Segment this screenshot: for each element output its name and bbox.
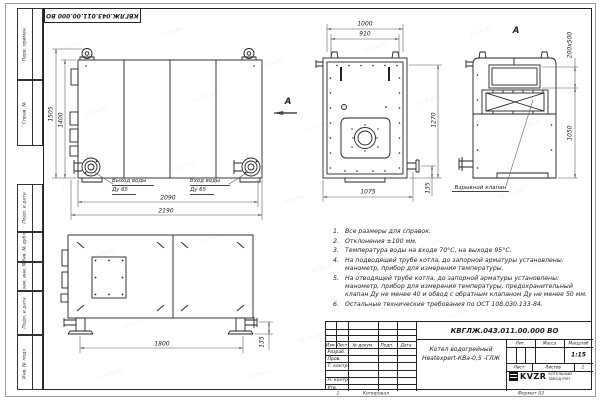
tb-product-name-line2: Heatexpert-КВа-0,5 -ГЛЖ (416, 355, 506, 364)
tb-line (516, 347, 517, 363)
tb-mass-label: Масса (543, 341, 556, 346)
note-number: 2. (333, 238, 345, 246)
tb-line (326, 329, 416, 330)
dim-front-height: 1270 (431, 112, 438, 127)
tb-row-utv: Утв. (328, 386, 338, 391)
tb-line (506, 347, 593, 348)
explosion-valve-callout: Взрывной клапан (452, 185, 509, 192)
view-a (459, 52, 556, 178)
dim-side-width-outer: 2190 (158, 208, 173, 215)
tb-line (378, 322, 379, 391)
tb-col-docnum: № докум. (353, 342, 374, 347)
note-item: 3.Температура воды на входе 70°С, на вых… (333, 247, 588, 255)
technical-notes: 1.Все размеры для справок. 2.Отклонения … (333, 228, 588, 311)
note-item: 5.На отводящей трубе котла, до запорной … (333, 275, 588, 300)
note-item: 4.На подводящей трубе котла, до запорной… (333, 257, 588, 273)
tb-row-nkontr: Н. контр. (328, 378, 350, 383)
note-text: Остальные технические требования по ОСТ … (345, 301, 588, 309)
view-a-label: А (513, 26, 520, 36)
note-text: На отводящей трубе котла, до запорной ар… (345, 275, 588, 300)
dim-front-pipe-offset: 135 (425, 182, 432, 193)
inlet-dn: Ду 65 (190, 187, 214, 195)
footer-copied: Копировал (363, 392, 389, 397)
tb-line (397, 322, 398, 391)
dim-side-width-inner: 2090 (160, 195, 175, 202)
dim-view-a-opening: 200х500 (567, 32, 574, 58)
tb-col-data: Дата (401, 342, 412, 347)
outlet-label: Выход воды (112, 178, 154, 186)
note-number: 5. (333, 275, 345, 300)
tb-line (574, 363, 575, 371)
note-item: 2.Отклонения ±100 мм. (333, 238, 588, 246)
outlet-dn: Ду 65 (112, 187, 136, 195)
tb-doc-number: КВГЛЖ.043.011.00.000 ВО (416, 322, 593, 339)
tb-col-izm: Изм. (326, 342, 336, 347)
dim-view-a-height: 1050 (567, 125, 574, 140)
tb-scale-value: 1:15 (571, 352, 586, 359)
tb-product-name-line1: Котел водогрейный (416, 346, 506, 355)
tb-line (532, 363, 533, 371)
tb-line (326, 384, 416, 385)
tb-line (535, 339, 536, 363)
tb-sheets-value: 1 (582, 365, 585, 370)
tb-sheet-label: Лист (514, 365, 525, 370)
tb-line (525, 347, 526, 363)
tb-col-list: Лист (337, 342, 348, 347)
dim-front-bottom: 1075 (360, 189, 375, 196)
tb-lit-label: Лит. (516, 341, 526, 346)
tb-scale-label: Масштаб (569, 341, 589, 346)
note-item: 6.Остальные технические требования по ОС… (333, 301, 588, 309)
sheet: KVZR.RUKVZR.RUKVZR.RUKVZR.RUKVZR.RUKVZR.… (0, 0, 600, 400)
kvzr-logo-text: KVZR (520, 372, 546, 381)
note-number: 1. (333, 228, 345, 236)
side-view (70, 49, 262, 183)
tb-row-razrab: Разраб. (328, 350, 346, 355)
note-item: 1.Все размеры для справок. (333, 228, 588, 236)
note-number: 3. (333, 247, 345, 255)
dim-bottom-pipe-offset: 135 (259, 336, 266, 347)
tb-line (564, 339, 565, 363)
bottom-view-dimensions (80, 322, 273, 353)
note-text: Температура воды на входе 70°С, на выход… (345, 247, 588, 255)
note-number: 6. (333, 301, 345, 309)
footer-copy-num: 1 (337, 392, 340, 397)
dim-side-height-outer: 1505 (48, 106, 55, 121)
tb-product-name: Котел водогрейный Heatexpert-КВа-0,5 -ГЛ… (416, 339, 506, 363)
note-number: 4. (333, 257, 345, 273)
title-block: Изм. Лист № докум. Подп. Дата Разраб. Пр… (325, 321, 592, 390)
note-text: Все размеры для справок. (345, 228, 588, 236)
front-view-dimensions (323, 24, 442, 202)
dim-bottom-length: 1800 (154, 341, 169, 348)
tb-line (326, 335, 416, 336)
kvzr-logo-icon (509, 372, 518, 381)
bottom-view (61, 235, 257, 334)
note-text: На подводящей трубе котла, до запорной а… (345, 257, 588, 273)
tb-row-tkontr: Т. контр. (328, 364, 349, 369)
tb-logo: KVZR КОТЕЛЬНЫЙ ЗАВОД РЭП (509, 372, 584, 381)
tb-line (326, 370, 416, 371)
dim-front-width-inner: 910 (359, 31, 370, 38)
view-arrow-label: А (285, 97, 292, 107)
dim-front-width-outer: 1000 (357, 21, 372, 28)
footer-format: Формат А3 (518, 392, 544, 397)
tb-sheets-label: Листов (545, 365, 561, 370)
tb-row-prov: Пров. (328, 357, 341, 362)
front-view (316, 52, 419, 182)
note-text: Отклонения ±100 мм. (345, 238, 588, 246)
dim-side-height-inner: 1400 (58, 112, 65, 127)
inlet-label: Вход воды (190, 178, 230, 186)
kvzr-logo-caption: КОТЕЛЬНЫЙ ЗАВОД РЭП (548, 372, 584, 381)
view-a-dimensions (506, 58, 578, 186)
tb-col-podp: Подп. (381, 342, 394, 347)
